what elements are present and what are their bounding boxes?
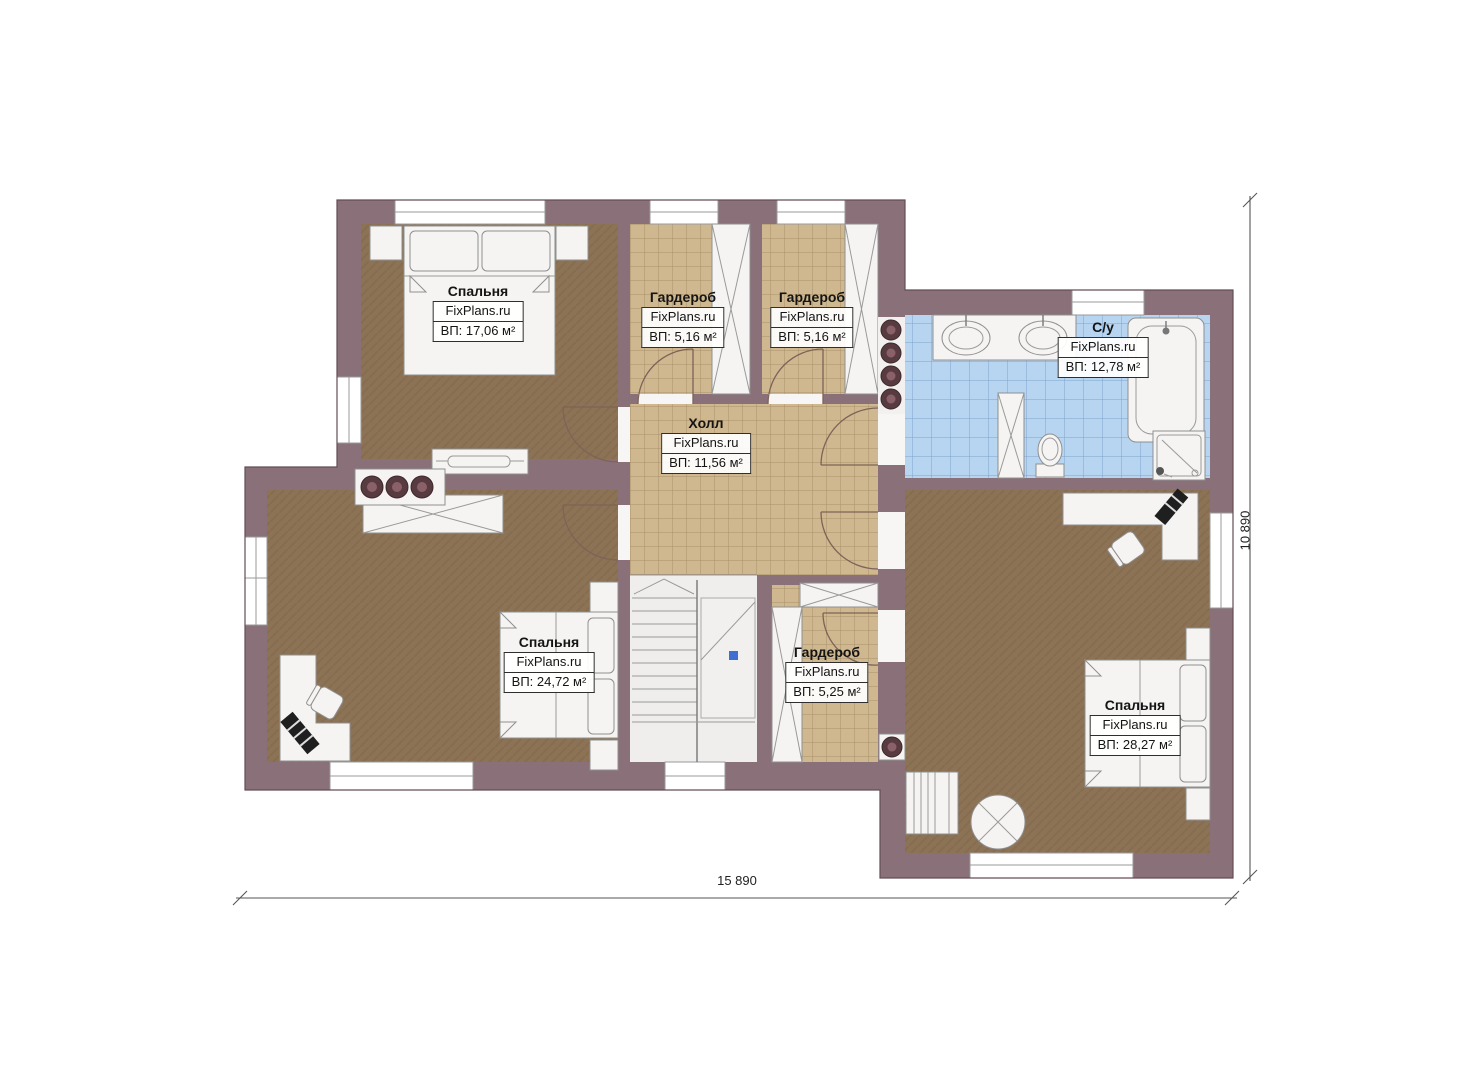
dresser-knobs bbox=[355, 469, 445, 505]
nightstand bbox=[590, 582, 618, 612]
window bbox=[970, 853, 1133, 878]
room-name: С/у bbox=[1058, 319, 1149, 335]
room-name: Гардероб bbox=[641, 289, 724, 305]
room-label-hall: Холл FixPlans.ru ВП: 11,56 м² bbox=[661, 415, 751, 474]
room-watermark: FixPlans.ru bbox=[661, 433, 751, 454]
room-watermark: FixPlans.ru bbox=[785, 662, 868, 683]
room-name: Спальня bbox=[1090, 697, 1181, 713]
room-label-bedroom-bottom-right: Спальня FixPlans.ru ВП: 28,27 м² bbox=[1090, 697, 1181, 756]
dimension-height-label: 10 890 bbox=[1238, 489, 1253, 573]
room-label-wardrobe-2: Гардероб FixPlans.ru ВП: 5,16 м² bbox=[770, 289, 853, 348]
room-area: ВП: 5,25 м² bbox=[785, 683, 868, 703]
window bbox=[1210, 513, 1233, 608]
tv-bench bbox=[432, 449, 528, 474]
floor-plan-drawing bbox=[0, 0, 1474, 1080]
room-label-wardrobe-3: Гардероб FixPlans.ru ВП: 5,25 м² bbox=[785, 644, 868, 703]
room-name: Спальня bbox=[504, 634, 595, 650]
room-watermark: FixPlans.ru bbox=[433, 301, 524, 322]
wall-vent bbox=[879, 734, 905, 760]
pillow bbox=[410, 231, 478, 271]
room-watermark: FixPlans.ru bbox=[504, 652, 595, 673]
window bbox=[650, 200, 718, 224]
bathroom-cabinet bbox=[998, 393, 1024, 478]
floor-plan-page: Спальня FixPlans.ru ВП: 17,06 м² Гардеро… bbox=[0, 0, 1474, 1080]
room-area: ВП: 5,16 м² bbox=[770, 328, 853, 348]
room-area: ВП: 5,16 м² bbox=[641, 328, 724, 348]
room-label-bedroom-bottom-left: Спальня FixPlans.ru ВП: 24,72 м² bbox=[504, 634, 595, 693]
dimension-width-label: 15 890 bbox=[697, 873, 777, 888]
nightstand bbox=[1186, 788, 1210, 820]
nightstand bbox=[370, 226, 402, 260]
nightstand bbox=[1186, 628, 1210, 660]
room-watermark: FixPlans.ru bbox=[1090, 715, 1181, 736]
round-table bbox=[971, 795, 1025, 849]
room-area: ВП: 28,27 м² bbox=[1090, 736, 1181, 756]
room-watermark: FixPlans.ru bbox=[1058, 337, 1149, 358]
window bbox=[777, 200, 845, 224]
window bbox=[245, 537, 267, 625]
window bbox=[337, 377, 361, 443]
pillow bbox=[1180, 665, 1206, 721]
room-watermark: FixPlans.ru bbox=[770, 307, 853, 328]
shower bbox=[1153, 431, 1205, 480]
wardrobe-cabinet bbox=[800, 583, 878, 607]
room-area: ВП: 17,06 м² bbox=[433, 322, 524, 342]
window bbox=[330, 762, 473, 790]
room-area: ВП: 24,72 м² bbox=[504, 673, 595, 693]
room-name: Спальня bbox=[433, 283, 524, 299]
window bbox=[1072, 290, 1144, 315]
room-area: ВП: 12,78 м² bbox=[1058, 358, 1149, 378]
room-label-bedroom-top-left: Спальня FixPlans.ru ВП: 17,06 м² bbox=[433, 283, 524, 342]
pillow bbox=[482, 231, 550, 271]
room-label-wardrobe-1: Гардероб FixPlans.ru ВП: 5,16 м² bbox=[641, 289, 724, 348]
room-area: ВП: 11,56 м² bbox=[661, 454, 751, 474]
room-name: Гардероб bbox=[770, 289, 853, 305]
piano bbox=[906, 772, 958, 834]
room-name: Холл bbox=[661, 415, 751, 431]
window bbox=[395, 200, 545, 224]
pillow bbox=[1180, 726, 1206, 782]
nightstand bbox=[556, 226, 588, 260]
room-label-bathroom: С/у FixPlans.ru ВП: 12,78 м² bbox=[1058, 319, 1149, 378]
nightstand bbox=[590, 740, 618, 770]
stair-marker bbox=[729, 651, 738, 660]
towel-radiator bbox=[878, 317, 905, 414]
room-watermark: FixPlans.ru bbox=[641, 307, 724, 328]
washbasin-counter bbox=[933, 315, 1076, 360]
toilet bbox=[1036, 434, 1064, 477]
window bbox=[665, 762, 725, 790]
room-name: Гардероб bbox=[785, 644, 868, 660]
